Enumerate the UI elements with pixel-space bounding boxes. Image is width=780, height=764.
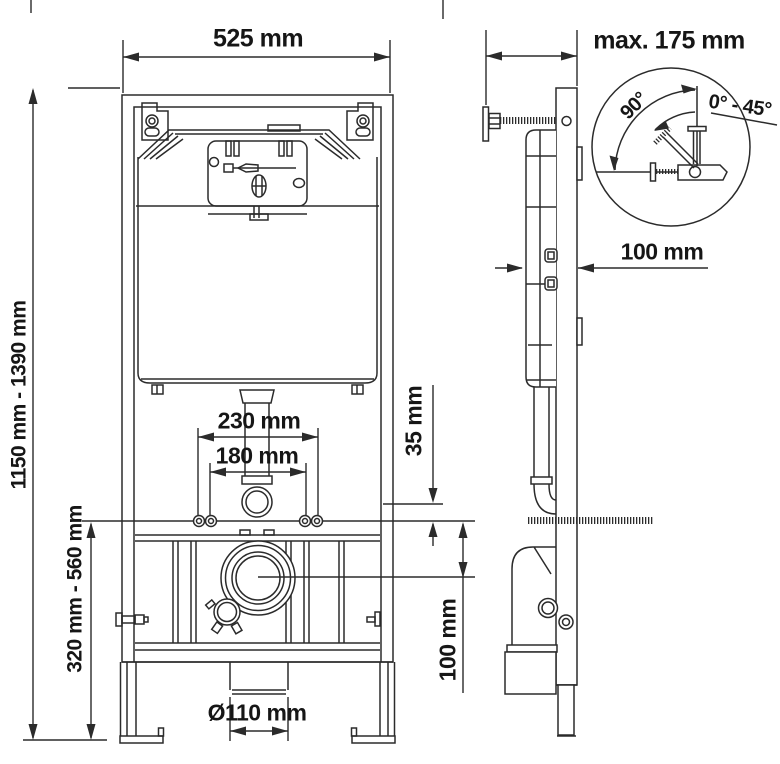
drawing-canvas (0, 0, 780, 764)
dim-lower-height-range: 320 mm - 560 mm (65, 505, 86, 673)
dim-stud-spacing-inner: 180 mm (216, 445, 299, 468)
dim-frame-depth: 100 mm (621, 241, 704, 264)
dim-wall-distance-max: max. 175 mm (593, 29, 745, 54)
side-view (483, 88, 653, 736)
dim-stud-spacing-outer: 230 mm (218, 410, 301, 433)
dimension-arrowheads (29, 52, 595, 741)
technical-drawing-page: 525 mm 1150 mm - 1390 mm 320 mm - 560 mm… (0, 0, 780, 764)
dim-flush-elbow-offset: 35 mm (403, 386, 426, 456)
dim-drain-diameter: Ø110 mm (208, 702, 307, 725)
dim-front-width: 525 mm (213, 27, 303, 52)
dimension-lines (23, 0, 708, 741)
dim-drain-center-offset: 100 mm (437, 599, 460, 682)
dim-frame-height-range: 1150 mm - 1390 mm (9, 301, 30, 490)
